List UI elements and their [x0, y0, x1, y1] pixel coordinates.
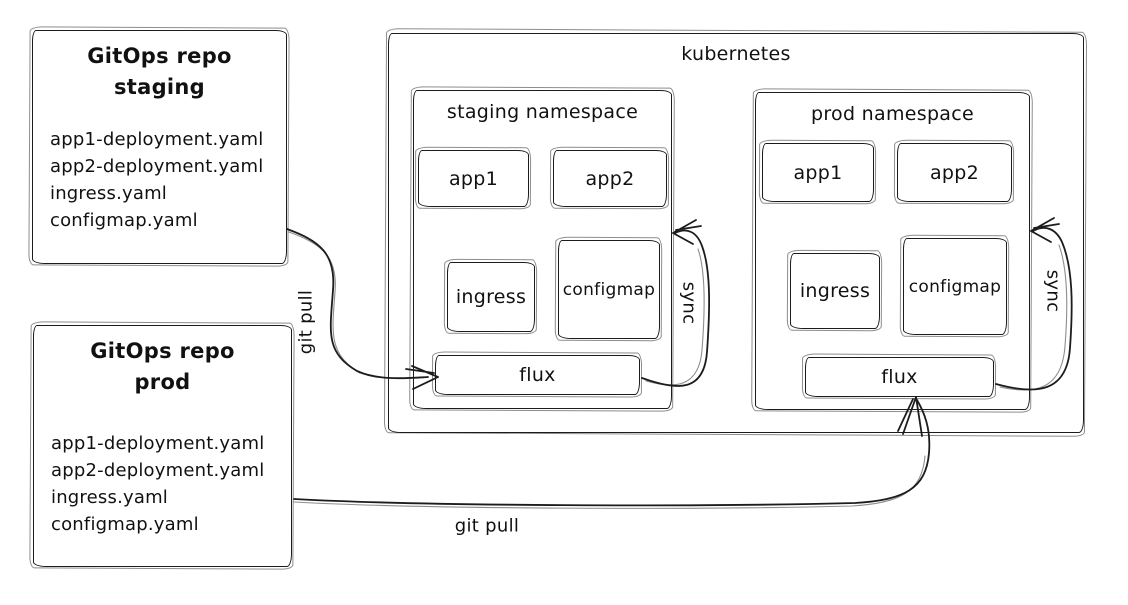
prod-app2-label: app2 — [930, 162, 979, 184]
prod-flux-box: flux — [805, 357, 994, 397]
staging-app1-box: app1 — [418, 150, 529, 207]
staging-ingress-label: ingress — [456, 286, 526, 308]
staging-app2-box: app2 — [553, 150, 667, 207]
repo-title-line1: GitOps repo — [33, 41, 286, 72]
file-item: app1-deployment.yaml — [50, 126, 286, 153]
git-pull-label-prod: git pull — [455, 516, 519, 537]
repo-prod-title: GitOps repo prod — [34, 326, 291, 398]
file-item: app1-deployment.yaml — [51, 430, 291, 457]
staging-app2-label: app2 — [585, 168, 634, 190]
file-item: ingress.yaml — [50, 180, 286, 207]
staging-configmap-label: configmap — [563, 280, 656, 300]
diagram-canvas: GitOps repo staging app1-deployment.yaml… — [0, 0, 1128, 605]
file-item: ingress.yaml — [51, 484, 291, 511]
staging-configmap-box: configmap — [558, 240, 660, 339]
prod-app1-label: app1 — [793, 162, 842, 184]
staging-flux-box: flux — [435, 355, 640, 395]
staging-app1-label: app1 — [449, 168, 498, 190]
gitops-repo-staging-box: GitOps repo staging app1-deployment.yaml… — [32, 30, 287, 264]
gitops-repo-prod-box: GitOps repo prod app1-deployment.yaml ap… — [33, 325, 292, 567]
file-item: app2-deployment.yaml — [50, 153, 286, 180]
sync-label-prod: sync — [1043, 270, 1064, 313]
staging-ingress-box: ingress — [447, 262, 535, 332]
prod-configmap-label: configmap — [909, 277, 1002, 297]
file-item: configmap.yaml — [51, 511, 291, 538]
repo-staging-title: GitOps repo staging — [33, 31, 286, 103]
prod-ingress-box: ingress — [790, 253, 880, 329]
kubernetes-label: kubernetes — [389, 43, 1083, 65]
git-pull-label-staging: git pull — [296, 290, 317, 354]
prod-ingress-label: ingress — [800, 280, 870, 302]
prod-app1-box: app1 — [762, 143, 874, 202]
prod-app2-box: app2 — [897, 143, 1012, 202]
prod-configmap-box: configmap — [903, 238, 1007, 335]
repo-prod-file-list: app1-deployment.yaml app2-deployment.yam… — [34, 430, 291, 538]
prod-flux-label: flux — [881, 366, 917, 388]
staging-flux-label: flux — [519, 364, 555, 386]
repo-title-line2: staging — [33, 72, 286, 103]
file-item: app2-deployment.yaml — [51, 457, 291, 484]
repo-title-line1: GitOps repo — [34, 336, 291, 367]
sync-label-staging: sync — [679, 282, 700, 325]
file-item: configmap.yaml — [50, 207, 286, 234]
staging-namespace-label: staging namespace — [414, 101, 671, 123]
repo-title-line2: prod — [34, 367, 291, 398]
prod-namespace-label: prod namespace — [756, 103, 1029, 125]
repo-staging-file-list: app1-deployment.yaml app2-deployment.yam… — [33, 126, 286, 234]
